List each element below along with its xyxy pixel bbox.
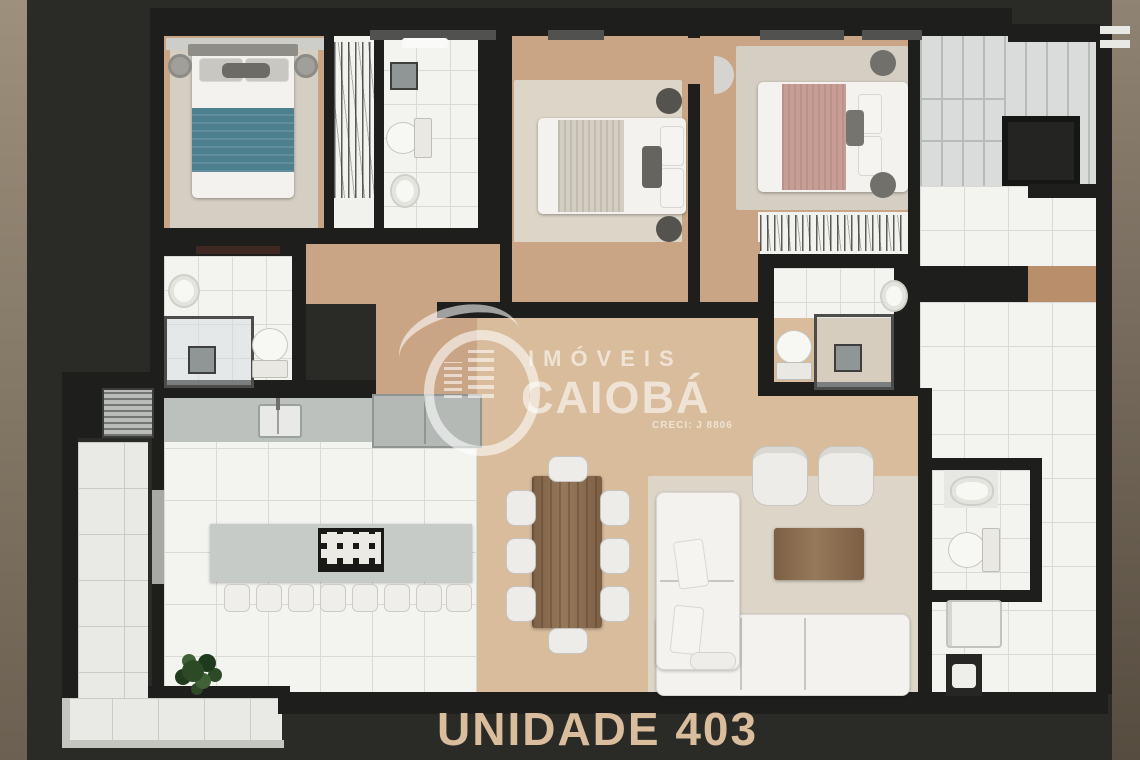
top-right-detail [1100, 26, 1130, 34]
bedroom3-door-gap [688, 38, 700, 84]
hall-console [196, 246, 280, 254]
dining-chair [600, 538, 630, 574]
coffee-table [774, 528, 864, 580]
laundry-tank-basin [952, 664, 976, 688]
armchair [752, 446, 808, 506]
window-segment [760, 30, 844, 40]
bar-stool [320, 584, 346, 612]
sink-4 [950, 476, 994, 506]
shower-fixture [188, 346, 216, 374]
bed-2-dark-pillow [642, 146, 662, 188]
sink-2 [168, 274, 200, 308]
left-edge-strip [0, 0, 27, 760]
wall-bath4-right [1030, 458, 1042, 602]
cooktop [318, 528, 384, 572]
wall-closet1-left [324, 36, 334, 230]
wall-bath2-right [292, 242, 306, 396]
shower-fixture [390, 62, 418, 90]
balcony-floor-bottom [66, 698, 282, 744]
wall-bath3-top [758, 254, 910, 268]
nightstand [870, 172, 896, 198]
bed-1-blanket [192, 108, 294, 172]
dining-chair [506, 586, 536, 622]
dining-chair [600, 586, 630, 622]
wall-closet1-right [374, 36, 384, 230]
nightstand [870, 50, 896, 76]
toilet-4-bowl [948, 532, 986, 568]
nightstand [656, 88, 682, 114]
kitchen-cabinet-divider [424, 394, 426, 444]
toilet-3-tank [776, 362, 812, 380]
wall-top-right [1008, 24, 1100, 42]
armchair [818, 446, 874, 506]
kitchen-faucet [276, 398, 280, 410]
closet-3-clothes [760, 215, 906, 251]
washer [946, 600, 1002, 648]
sofa-pillow [673, 538, 709, 590]
wall-left [150, 8, 164, 398]
kitchen-cabinet [372, 394, 482, 448]
bath-mat [402, 38, 448, 48]
toilet-4-tank [982, 528, 1000, 572]
bar-stool [256, 584, 282, 612]
wall-bedroom2-left [500, 36, 512, 306]
wall-bedroom3-right [908, 36, 920, 396]
sofa-seam [804, 618, 806, 690]
floorplan-image: IMÓVEIS CAIOBÁ CRECI: J 8806 UNIDADE 403 [0, 0, 1140, 760]
balcony-railing-bottom [62, 740, 284, 748]
wall-living-right [918, 388, 932, 694]
nightstand [294, 54, 318, 78]
kitchen-sink [258, 404, 302, 438]
window-segment [548, 30, 604, 40]
wall-bath3-left [758, 254, 774, 394]
bed-2-pillow [660, 168, 684, 208]
bar-stool [224, 584, 250, 612]
bed-3-blanket [782, 84, 846, 190]
nightstand [656, 216, 682, 242]
nightstand [168, 54, 192, 78]
right-edge-strip [1112, 0, 1140, 760]
sink-3 [880, 280, 908, 312]
window-segment [862, 30, 922, 40]
sink-1 [390, 174, 420, 208]
bed-1-headboard [188, 44, 298, 56]
bar-stool [288, 584, 314, 612]
wall-stair-landing [1028, 184, 1098, 198]
wall-bath3-right [894, 254, 908, 396]
balcony-railing-left [62, 698, 70, 744]
elevator-shaft [1002, 116, 1080, 186]
bar-stool [446, 584, 472, 612]
toilet-2-bowl [252, 328, 288, 362]
balcony-door [152, 490, 164, 584]
unit-caption: UNIDADE 403 [437, 702, 758, 756]
dining-chair [548, 628, 588, 654]
sofa-pillow [670, 605, 705, 656]
bar-stool [416, 584, 442, 612]
hallway-passage-floor [376, 304, 477, 398]
toilet-1-tank [414, 118, 432, 158]
plant [182, 660, 204, 682]
ac-unit [102, 388, 154, 438]
bed-3-dark-pillow [846, 110, 864, 146]
dining-chair [506, 538, 536, 574]
dining-table [532, 476, 602, 628]
dining-chair [548, 456, 588, 482]
bar-stool [384, 584, 410, 612]
balcony-floor-left [78, 442, 148, 698]
wall-hall-bottom [437, 302, 767, 318]
bed-2-pillow [660, 126, 684, 166]
closet-1-clothes [334, 42, 374, 198]
wall-bath4-top [932, 458, 1042, 470]
shower-fixture [834, 344, 862, 372]
bar-stool [352, 584, 378, 612]
sofa-seam [740, 618, 742, 690]
sofa-bolster [690, 652, 736, 670]
toilet-3-bowl [776, 330, 812, 364]
stair-line [920, 140, 1004, 142]
wall-bath1-right [478, 36, 502, 230]
wall-right [1096, 30, 1112, 694]
top-right-detail [1100, 40, 1130, 48]
wall-kitchen-bottom-left [148, 686, 290, 698]
bed-1-bolster [222, 63, 270, 78]
wall-common [920, 266, 1028, 302]
bed-2-blanket [558, 120, 624, 212]
stair-line [920, 98, 1004, 100]
dining-chair [600, 490, 630, 526]
toilet-2-tank [252, 360, 288, 378]
dining-chair [506, 490, 536, 526]
